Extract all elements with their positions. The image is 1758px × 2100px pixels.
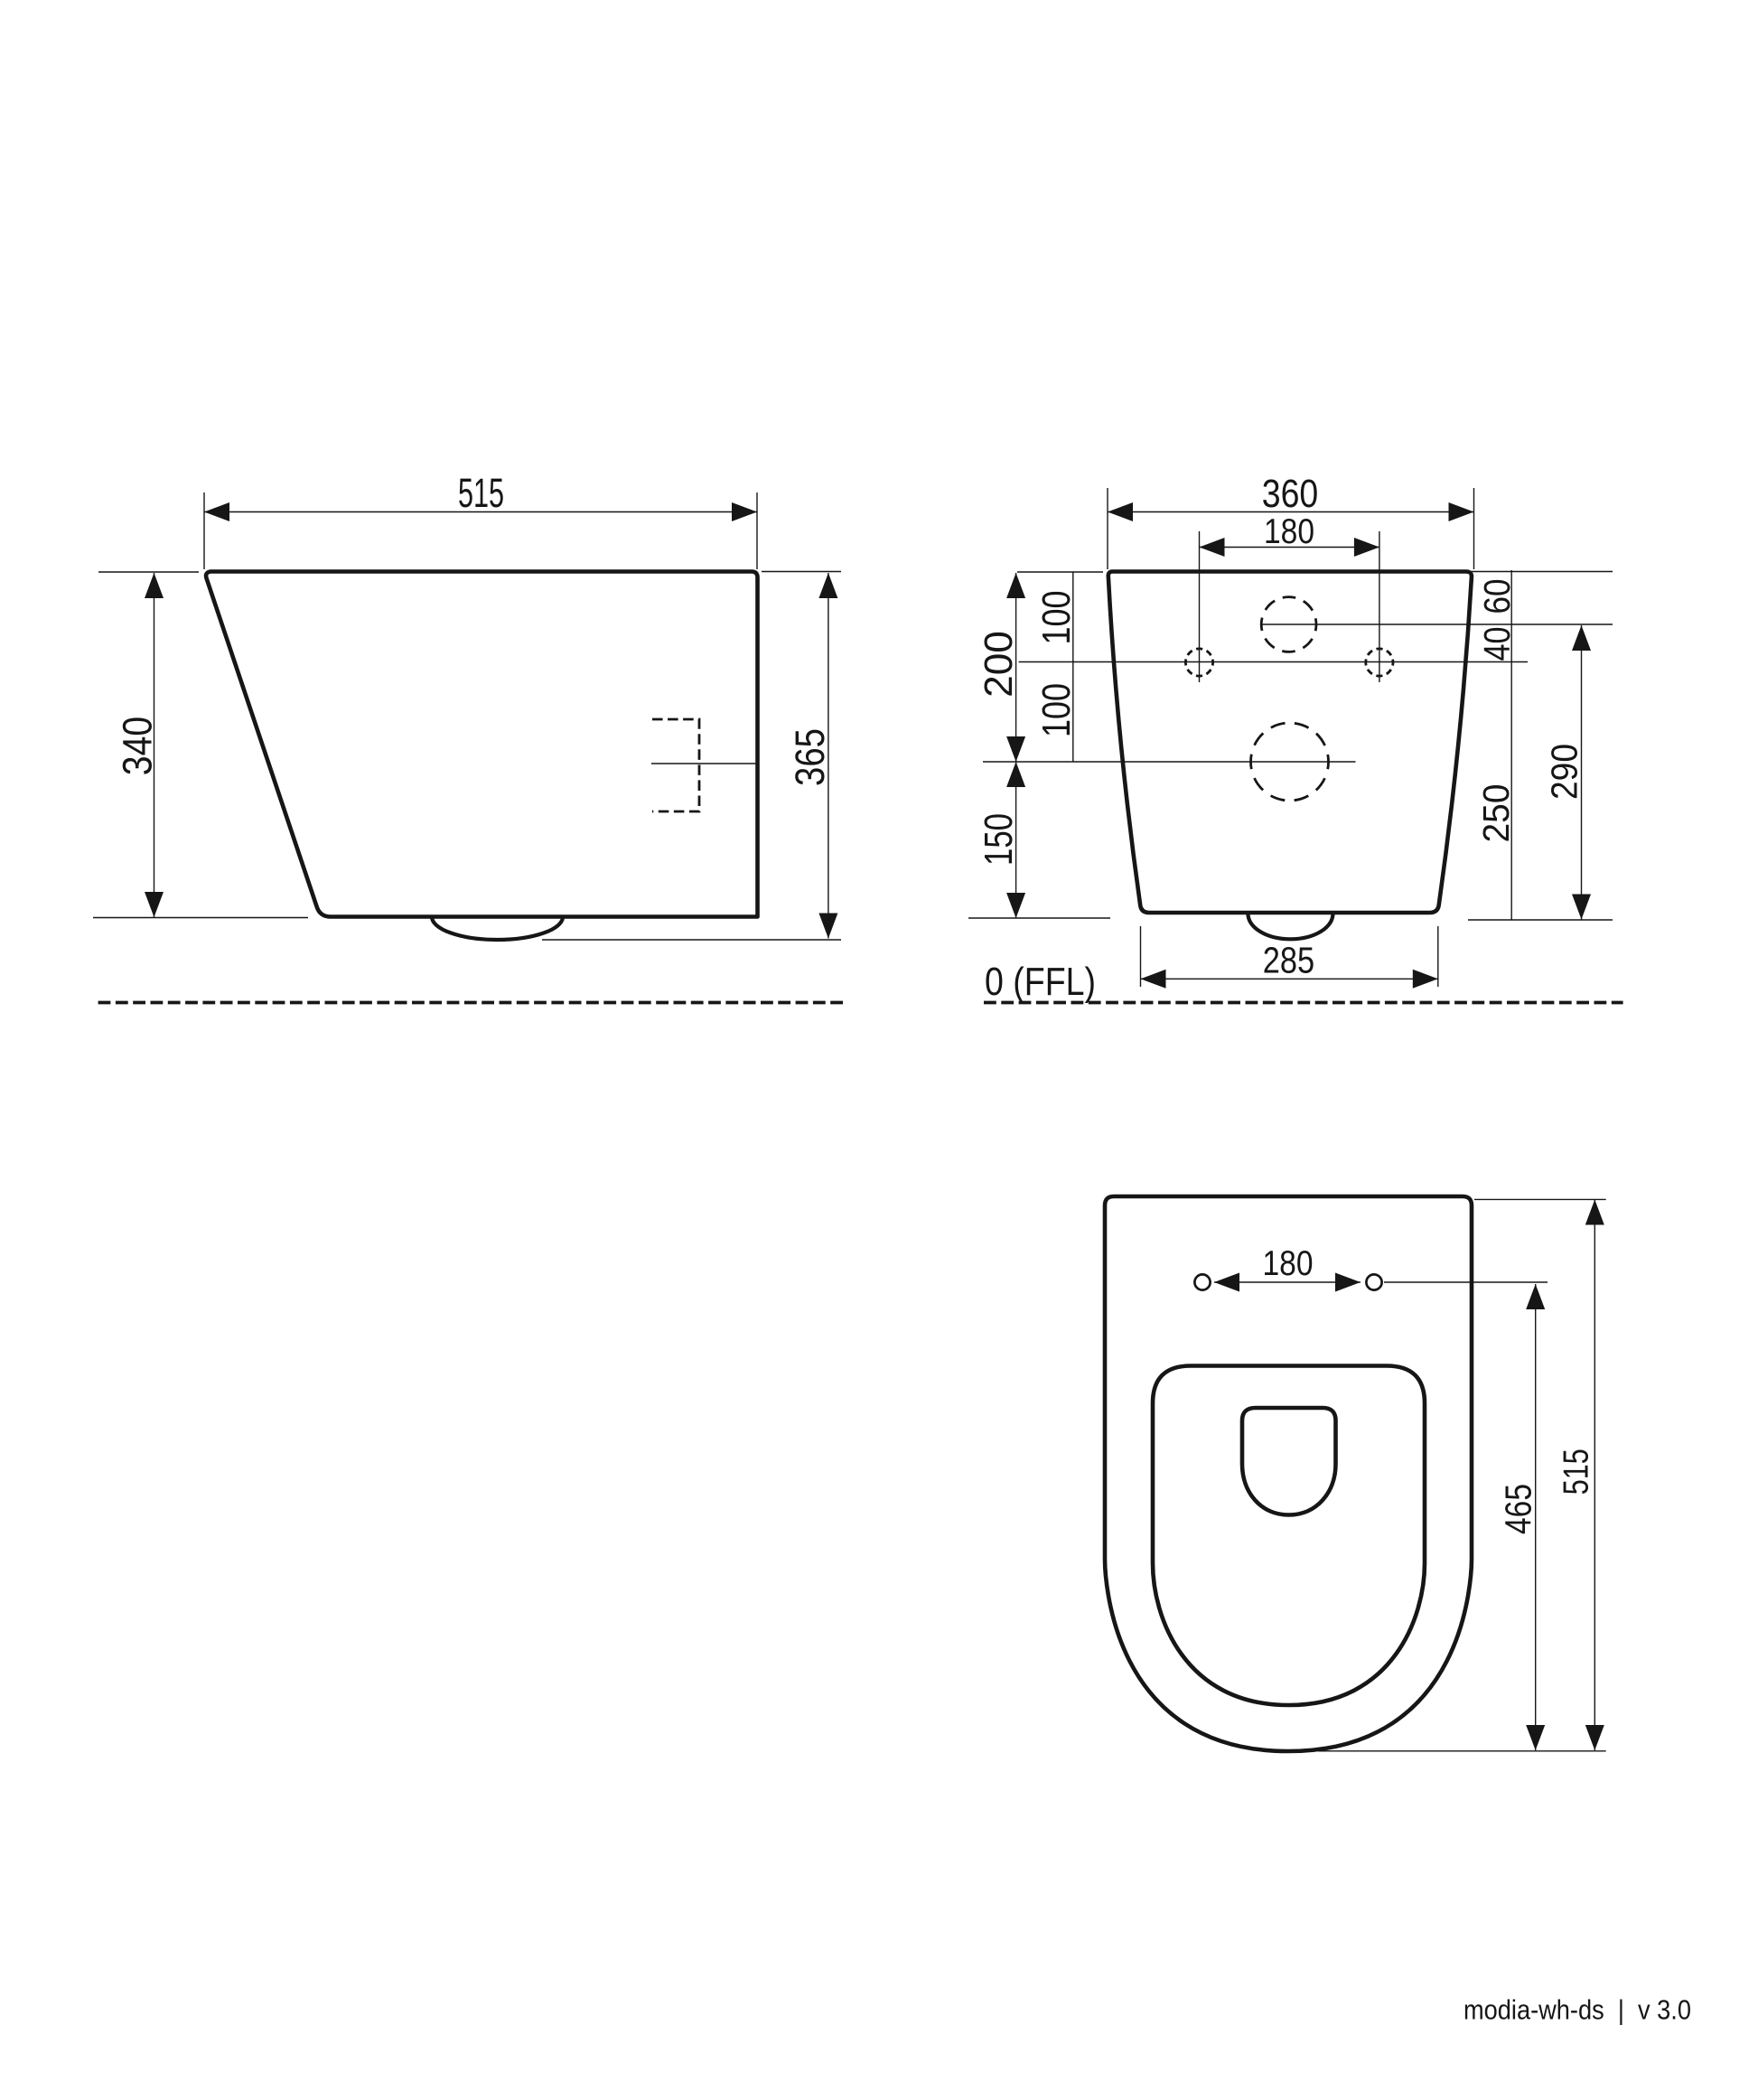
svg-text:465: 465 xyxy=(1498,1484,1539,1534)
svg-text:200: 200 xyxy=(977,631,1021,698)
svg-text:180: 180 xyxy=(1263,1244,1314,1283)
svg-text:40: 40 xyxy=(1476,627,1518,661)
svg-text:290: 290 xyxy=(1544,744,1585,800)
svg-text:340: 340 xyxy=(115,717,161,776)
svg-text:modia-wh-ds | v 3.0: modia-wh-ds | v 3.0 xyxy=(1463,1994,1691,2026)
svg-text:365: 365 xyxy=(787,728,833,786)
svg-text:60: 60 xyxy=(1476,579,1518,614)
svg-text:250: 250 xyxy=(1475,784,1517,843)
svg-text:515: 515 xyxy=(1557,1448,1596,1495)
svg-text:180: 180 xyxy=(1264,512,1314,551)
svg-text:0 (FFL): 0 (FFL) xyxy=(985,960,1096,1004)
svg-text:515: 515 xyxy=(458,470,504,516)
svg-text:150: 150 xyxy=(977,813,1021,866)
svg-text:360: 360 xyxy=(1262,472,1319,516)
svg-text:100: 100 xyxy=(1034,591,1079,645)
svg-text:285: 285 xyxy=(1263,940,1314,981)
svg-text:100: 100 xyxy=(1034,683,1079,737)
